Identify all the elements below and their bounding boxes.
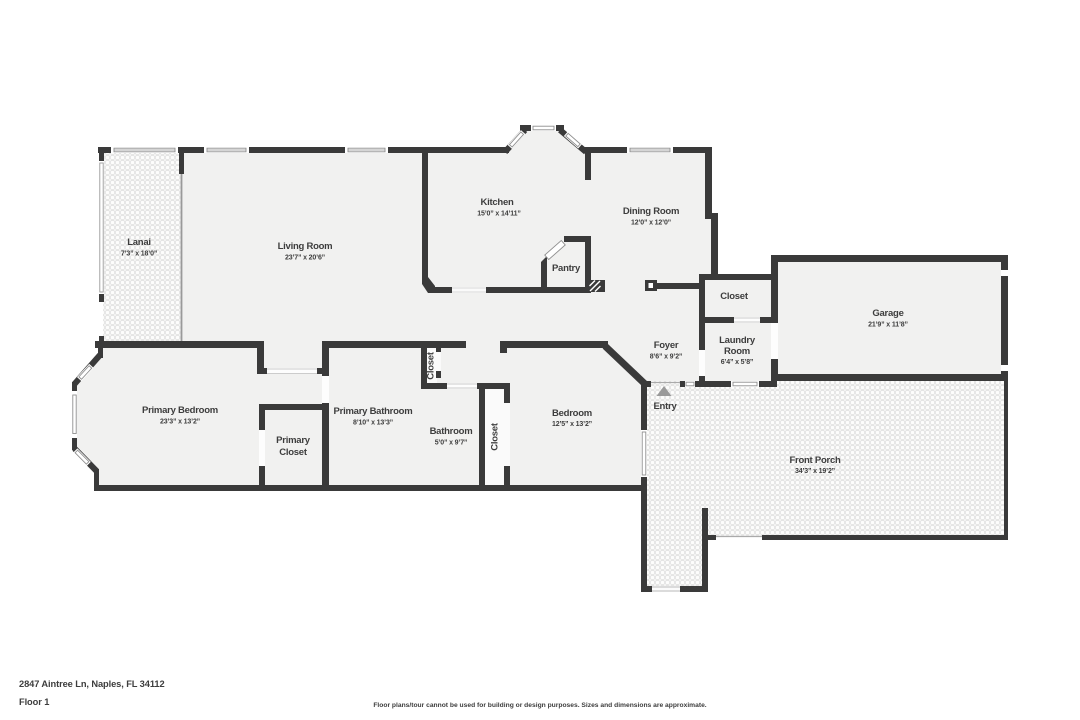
svg-text:Laundry: Laundry — [719, 335, 756, 346]
svg-text:23’3” x 13’2”: 23’3” x 13’2” — [160, 419, 200, 426]
svg-text:15’0” x 14’11”: 15’0” x 14’11” — [477, 211, 520, 218]
svg-text:Closet: Closet — [426, 351, 437, 380]
svg-text:Primary: Primary — [276, 435, 311, 446]
svg-text:Kitchen: Kitchen — [480, 197, 514, 208]
svg-text:Bathroom: Bathroom — [430, 426, 473, 437]
svg-text:Bedroom: Bedroom — [552, 408, 592, 419]
svg-text:21’9” x 11’8”: 21’9” x 11’8” — [868, 322, 908, 329]
svg-text:23’7” x 20’6”: 23’7” x 20’6” — [285, 255, 325, 262]
svg-text:8’10” x 13’3”: 8’10” x 13’3” — [353, 420, 393, 427]
svg-text:Room: Room — [724, 346, 750, 357]
svg-text:Dining Room: Dining Room — [623, 206, 679, 217]
svg-text:Foyer: Foyer — [654, 340, 679, 351]
svg-text:Floor plans/tour cannot be use: Floor plans/tour cannot be used for buil… — [373, 702, 706, 709]
svg-text:34’3” x 19’2”: 34’3” x 19’2” — [795, 468, 835, 475]
svg-text:12’0” x 12’0”: 12’0” x 12’0” — [631, 220, 671, 227]
svg-text:Lanai: Lanai — [127, 237, 151, 248]
svg-text:Primary Bathroom: Primary Bathroom — [334, 406, 413, 417]
svg-text:6’4” x 5’8”: 6’4” x 5’8” — [721, 359, 754, 366]
svg-text:7’3” x 18’0”: 7’3” x 18’0” — [121, 251, 157, 258]
svg-text:2847 Aintree Ln, Naples, FL 34: 2847 Aintree Ln, Naples, FL 34112 — [19, 679, 165, 689]
svg-text:Closet: Closet — [279, 447, 308, 458]
svg-text:12’5” x 13’2”: 12’5” x 13’2” — [552, 421, 592, 428]
svg-text:Living Room: Living Room — [278, 241, 333, 252]
svg-text:Primary Bedroom: Primary Bedroom — [142, 405, 218, 416]
svg-text:Garage: Garage — [872, 308, 903, 319]
svg-text:Floor 1: Floor 1 — [19, 697, 49, 707]
svg-text:Closet: Closet — [720, 291, 749, 302]
svg-text:Pantry: Pantry — [552, 263, 581, 274]
svg-text:Entry: Entry — [653, 401, 677, 412]
svg-text:Front Porch: Front Porch — [789, 455, 841, 466]
svg-text:Closet: Closet — [490, 422, 501, 451]
svg-text:8’6” x 9’2”: 8’6” x 9’2” — [650, 354, 683, 361]
svg-text:5’0” x 9’7”: 5’0” x 9’7” — [435, 440, 468, 447]
